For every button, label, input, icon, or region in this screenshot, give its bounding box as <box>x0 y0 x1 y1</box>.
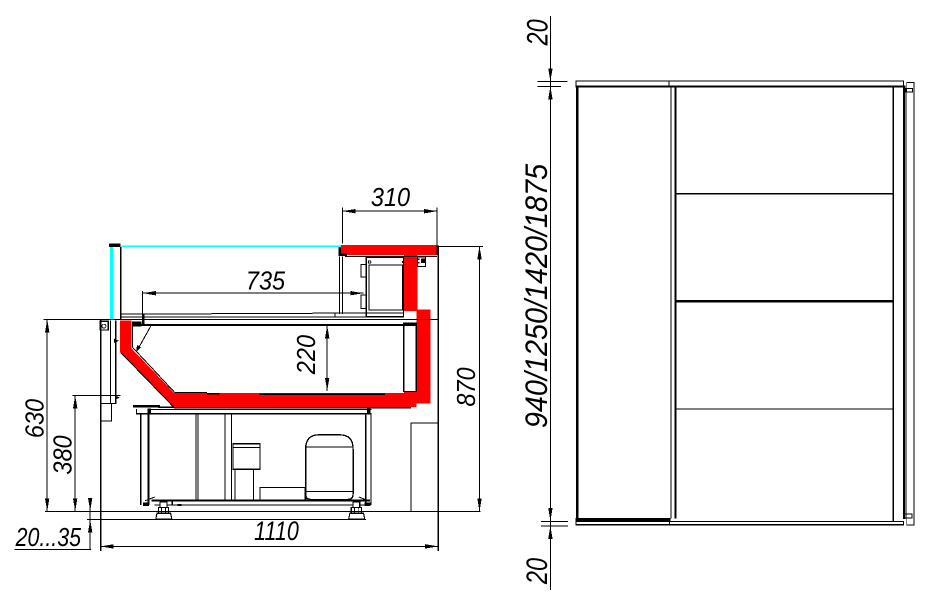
svg-text:20: 20 <box>521 19 554 46</box>
svg-text:310: 310 <box>371 184 410 212</box>
svg-text:1110: 1110 <box>254 517 299 547</box>
svg-text:20: 20 <box>520 558 553 585</box>
svg-text:20...35: 20...35 <box>15 523 82 553</box>
svg-text:220: 220 <box>292 335 322 375</box>
svg-text:380: 380 <box>48 435 78 474</box>
svg-text:630: 630 <box>20 399 50 438</box>
svg-text:940/1250/1420/1875: 940/1250/1420/1875 <box>520 164 554 429</box>
svg-text:735: 735 <box>246 268 285 296</box>
svg-text:870: 870 <box>452 367 482 406</box>
